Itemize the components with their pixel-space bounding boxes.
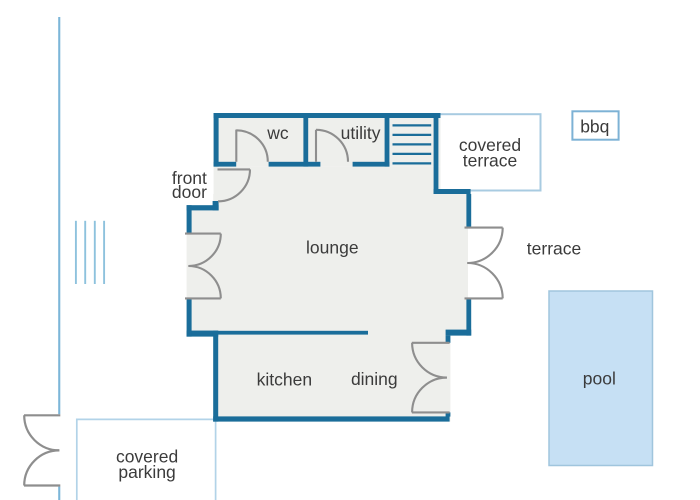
svg-text:utility: utility	[341, 123, 381, 143]
svg-text:parking: parking	[118, 462, 175, 482]
svg-text:wc: wc	[266, 123, 289, 143]
svg-text:terrace: terrace	[463, 151, 517, 171]
svg-text:kitchen: kitchen	[257, 370, 312, 390]
svg-text:door: door	[172, 182, 207, 202]
svg-text:lounge: lounge	[306, 237, 359, 257]
svg-text:terrace: terrace	[527, 239, 581, 259]
svg-text:pool: pool	[583, 368, 616, 388]
svg-text:bbq: bbq	[580, 116, 609, 136]
svg-text:dining: dining	[351, 369, 398, 389]
